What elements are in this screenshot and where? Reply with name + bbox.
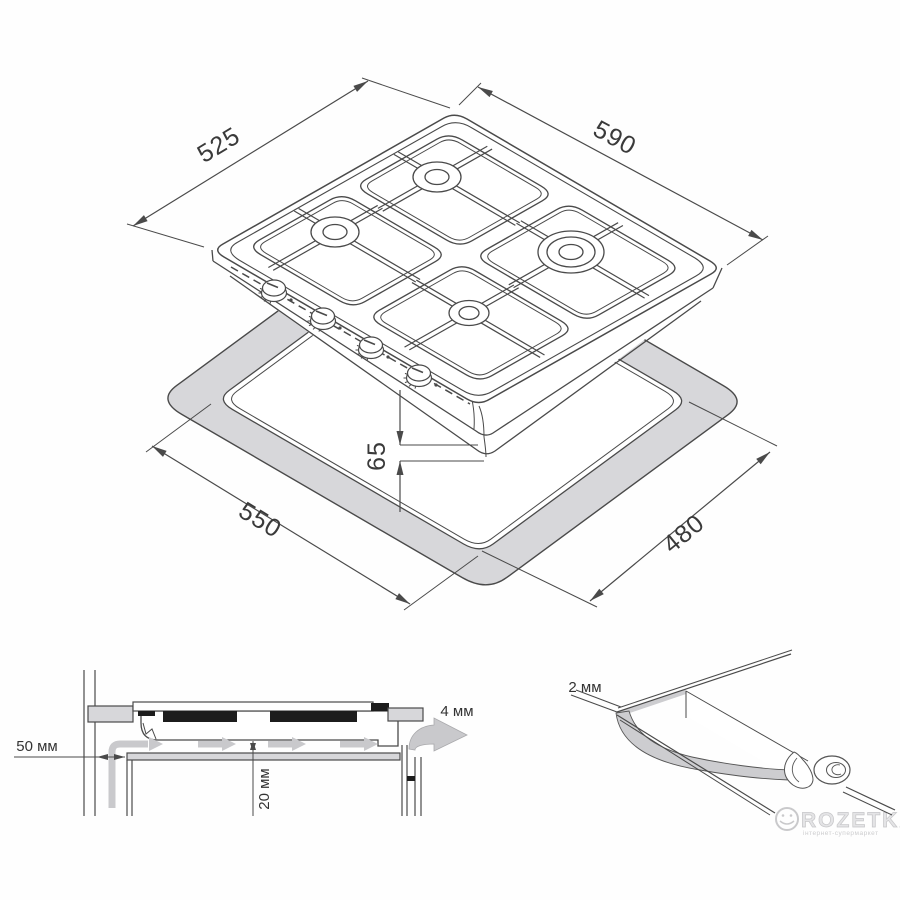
dim-550-label: 550 [234, 497, 287, 544]
ventilation-cross-section [14, 670, 467, 816]
dim-480-label: 480 [658, 509, 710, 559]
dim-65-label: 65 [363, 441, 391, 471]
dim-50mm-label: 50 мм [16, 738, 57, 755]
dim-2mm-label: 2 мм [568, 679, 601, 696]
watermark: ROZETKA інтернет-супермаркет [776, 808, 900, 837]
watermark-brand: ROZETKA [801, 809, 900, 832]
technical-drawing: ROZETKA інтернет-супермаркет 525 590 550… [0, 0, 900, 900]
dim-590-label: 590 [588, 115, 641, 161]
watermark-tagline: інтернет-супермаркет [803, 829, 879, 837]
seal-tape-detail [571, 650, 895, 815]
dim-20mm-label: 20 мм [256, 768, 273, 809]
dim-4mm-label: 4 мм [440, 703, 473, 720]
page: ROZETKA інтернет-супермаркет 525 590 550… [0, 0, 900, 900]
